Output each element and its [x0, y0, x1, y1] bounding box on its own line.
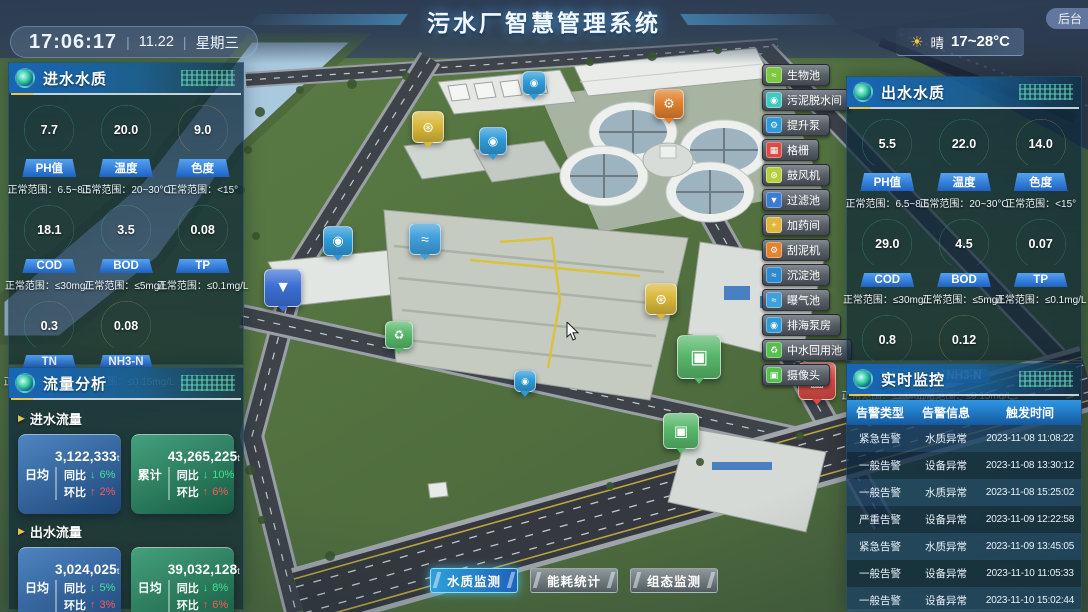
blower-marker-icon[interactable]: ⊛	[412, 111, 444, 143]
alarm-info: 设备异常	[913, 566, 979, 581]
legend-label: 刮泥机	[787, 242, 820, 258]
blower-icon: ⊛	[766, 167, 782, 183]
marker-pointer	[394, 348, 404, 354]
alarm-table: 告警类型告警信息触发时间 紧急告警水质异常2023-11-08 11:08:22…	[847, 400, 1081, 612]
marker-pointer	[529, 94, 539, 100]
arrow-down-icon: ↓	[203, 469, 209, 481]
alarm-info: 水质异常	[913, 431, 979, 446]
gauge-value: 18.1	[24, 205, 74, 255]
marker-pointer	[488, 154, 498, 160]
legend-item-sludge-dewatering[interactable]: ◉污泥脱水间	[762, 89, 852, 111]
mom-row: 环比↑6%	[177, 597, 228, 612]
gauge-value: 22.0	[939, 119, 989, 169]
gauge-range: 正常范围：≤30mg/L	[843, 291, 932, 306]
alarm-time: 2023-11-08 13:30:12	[979, 460, 1081, 471]
gauge-label: COD	[22, 259, 76, 273]
alarm-info: 设备异常	[913, 593, 979, 608]
alarm-column-header: 告警信息	[913, 404, 979, 421]
gauge-dial: 4.5	[939, 219, 989, 269]
flow-card-unit: t	[237, 566, 240, 576]
dot-matrix-decoration	[1019, 371, 1073, 387]
panel-header: 流量分析	[9, 368, 243, 398]
yoy-label: 同比	[64, 467, 86, 483]
alarm-time: 2023-11-08 15:25:02	[979, 487, 1081, 498]
gauge-range: 正常范围：<15°	[167, 181, 238, 196]
legend-item-sea-pump-house[interactable]: ◉排海泵房	[762, 314, 841, 336]
yoy-label: 同比	[177, 467, 199, 483]
clock-time: 17:06:17	[29, 31, 117, 54]
weather-temperature: 17~28°C	[951, 33, 1010, 50]
gauge-value: 29.0	[862, 219, 912, 269]
gauge-range: 正常范围：≤5mg/L	[922, 291, 1005, 306]
separator: |	[183, 34, 187, 50]
gauge-dial: 29.0	[862, 219, 912, 269]
legend-item-aeration-pool[interactable]: ≈曝气池	[762, 289, 830, 311]
gauge-dial: 0.07	[1016, 219, 1066, 269]
panel-title: 实时监控	[881, 369, 945, 390]
gauge-dial: 5.5	[862, 119, 912, 169]
alarm-type: 紧急告警	[847, 539, 913, 554]
legend-item-lift-pump[interactable]: ⚙提升泵	[762, 114, 830, 136]
panel-orb-icon	[853, 369, 873, 389]
panel-header-underline	[849, 394, 1079, 396]
yoy-value: 8%	[212, 582, 228, 594]
gauge-value: 0.08	[101, 301, 151, 351]
flow-card[interactable]: 日均3,024,025t同比↓5%环比↑3%	[18, 547, 121, 612]
gauge-range: 正常范围：6.5~8.5	[846, 195, 930, 210]
gauge-dial: 9.0	[178, 105, 228, 155]
alarm-type: 一般告警	[847, 485, 913, 500]
yoy-value: 6%	[100, 469, 116, 481]
gauge-dial: 0.08	[101, 301, 151, 351]
arrow-up-icon: ↑	[203, 599, 209, 611]
grille-icon: ▦	[766, 142, 782, 158]
gauge-dial: 3.5	[101, 205, 151, 255]
flow-group-label: ▶出水流量	[18, 522, 234, 541]
alarm-row[interactable]: 严重告警设备异常2023-11-09 12:22:58	[847, 506, 1081, 533]
gauge-bod: 4.5BOD正常范围：≤5mg/L	[927, 219, 1001, 306]
dot-matrix-decoration	[181, 375, 235, 391]
mom-value: 6%	[212, 599, 228, 611]
flow-card-body: 43,265,225t同比↓10%环比↑6%	[168, 449, 240, 500]
gauge-tp: 0.07TP正常范围：≤0.1mg/L	[1004, 219, 1078, 306]
gauge-range: 正常范围：≤30mg/L	[5, 277, 94, 292]
alarm-type: 严重告警	[847, 512, 913, 527]
mom-row: 环比↑2%	[64, 484, 115, 500]
panel-header: 出水水质	[847, 77, 1081, 107]
gauge-label: BOD	[99, 259, 153, 273]
gauge-chroma: 14.0色度正常范围：<15°	[1004, 119, 1078, 210]
gauge-label: 温度	[99, 159, 153, 177]
gauge-dial: 0.08	[178, 205, 228, 255]
alarm-info: 设备异常	[913, 458, 979, 473]
arrow-up-icon: ↑	[203, 486, 209, 498]
tab-energy-stats[interactable]: 能耗统计	[530, 568, 618, 593]
legend-label: 污泥脱水间	[787, 92, 842, 108]
pump-marker-icon[interactable]: ◉	[514, 370, 536, 392]
flow-cards: 日均3,024,025t同比↓5%环比↑3%日均39,032,128t同比↓8%…	[18, 547, 234, 612]
dosing-room-icon: +	[766, 217, 782, 233]
blower-marker-icon[interactable]: ⊛	[645, 283, 677, 315]
pump-marker-icon[interactable]: ◉	[323, 226, 353, 256]
mom-label: 环比	[64, 484, 86, 500]
gauge-value: 3.5	[101, 205, 151, 255]
flow-card-unit: t	[237, 453, 240, 463]
tab-water-quality-monitor[interactable]: 水质监测	[430, 568, 518, 593]
gauge-bod: 3.5BOD正常范围：≤5mg/L	[89, 205, 163, 292]
sedimentation-pool-icon: ≈	[766, 267, 782, 283]
alarm-time: 2023-11-09 12:22:58	[979, 514, 1081, 525]
flow-group-label: ▶进水流量	[18, 409, 234, 428]
clock-date: 11.22	[139, 34, 174, 50]
alarm-row[interactable]: 一般告警设备异常2023-11-10 15:02:44	[847, 587, 1081, 612]
arrow-down-icon: ↓	[90, 582, 96, 594]
gauge-label: 色度	[176, 159, 230, 177]
alarm-row[interactable]: 紧急告警水质异常2023-11-09 13:45:05	[847, 533, 1081, 560]
alarm-type: 一般告警	[847, 593, 913, 608]
gauge-value: 4.5	[939, 219, 989, 269]
gauge-range: 正常范围：≤0.1mg/L	[157, 277, 249, 292]
dashboard-root: ⊛◉◉⚙≈◉▼♻⊛▣▦▣◉ ≈生物池◉污泥脱水间⚙提升泵▦格栅⊛鼓风机▼过滤池+…	[0, 0, 1088, 612]
flow-card-body: 3,122,333t同比↓6%环比↑2%	[55, 449, 120, 500]
gauge-value: 20.0	[101, 105, 151, 155]
alarm-type: 一般告警	[847, 458, 913, 473]
flow-card-tag: 累计	[137, 466, 163, 483]
legend-label: 摄像头	[787, 367, 820, 383]
water-reuse-marker-icon[interactable]: ♻	[385, 321, 413, 349]
yoy-row: 同比↓6%	[64, 467, 115, 483]
marker-pointer	[278, 306, 288, 312]
gauge-range: 正常范围：6.5~8.5	[8, 181, 92, 196]
gauge-label: PH值	[22, 159, 76, 177]
gauge-label: 色度	[1014, 173, 1068, 191]
flow-card-tag: 日均	[24, 579, 50, 596]
gauge-dial: 7.7	[24, 105, 74, 155]
flow-card-value: 3,024,025t	[55, 562, 120, 577]
alarm-info: 设备异常	[913, 512, 979, 527]
alarm-row[interactable]: 一般告警水质异常2023-11-08 15:25:02	[847, 479, 1081, 506]
flow-card-value: 3,122,333t	[55, 449, 120, 464]
camera-marker-icon[interactable]: ▣	[663, 413, 699, 449]
gauge-value: 9.0	[178, 105, 228, 155]
gauge-dial: 0.3	[24, 301, 74, 351]
datetime-widget: 17:06:17 | 11.22 | 星期三	[10, 26, 258, 58]
gauge-value: 5.5	[862, 119, 912, 169]
legend-label: 沉淀池	[787, 267, 820, 283]
arrow-up-icon: ↑	[90, 599, 96, 611]
gauge-label: 温度	[937, 173, 991, 191]
flow-card-body: 39,032,128t同比↓8%环比↑6%	[168, 562, 240, 612]
gauge-range: 正常范围：≤5mg/L	[84, 277, 167, 292]
alarm-row[interactable]: 紧急告警水质异常2023-11-08 11:08:22	[847, 425, 1081, 452]
alarm-row[interactable]: 一般告警设备异常2023-11-08 13:30:12	[847, 452, 1081, 479]
sludge-dewatering-icon: ◉	[766, 92, 782, 108]
yoy-row: 同比↓5%	[64, 580, 115, 596]
dot-matrix-decoration	[181, 70, 235, 86]
gauge-label: TP	[1014, 273, 1068, 287]
legend-item-grille[interactable]: ▦格栅	[762, 139, 819, 161]
gauge-value: 0.3	[24, 301, 74, 351]
marker-pointer	[520, 391, 530, 397]
legend-label: 生物池	[787, 67, 820, 83]
aeration-pool-icon: ≈	[766, 292, 782, 308]
gauge-range: 正常范围：20~30°C	[81, 181, 170, 196]
filter-pool-icon: ▼	[766, 192, 782, 208]
sea-pump-house-icon: ◉	[766, 317, 782, 333]
top-bar: 污水厂智慧管理系统 17:06:17 | 11.22 | 星期三 ☀ 晴 17~…	[0, 0, 1088, 64]
flow-card-stats: 同比↓10%环比↑6%	[168, 467, 235, 500]
gauge-label: PH值	[860, 173, 914, 191]
water-reuse-pool-icon: ♻	[766, 342, 782, 358]
sun-icon: ☀	[910, 33, 923, 51]
alarm-time: 2023-11-10 15:02:44	[979, 595, 1081, 606]
flow-card-tag: 日均	[137, 579, 163, 596]
gauge-cod: 29.0COD正常范围：≤30mg/L	[850, 219, 924, 306]
legend-item-dosing-room[interactable]: +加药间	[762, 214, 830, 236]
flow-card-unit: t	[117, 453, 120, 463]
legend-item-mud-scraper[interactable]: ⚙刮泥机	[762, 239, 830, 261]
flow-card-stats: 同比↓8%环比↑6%	[168, 580, 228, 612]
marker-pointer	[812, 399, 822, 405]
alarm-row[interactable]: 一般告警设备异常2023-11-10 11:05:33	[847, 560, 1081, 587]
aeration-pool-marker-icon[interactable]: ≈	[409, 223, 441, 255]
flow-group-title: 出水流量	[30, 522, 82, 541]
gauge-label: BOD	[937, 273, 991, 287]
mom-value: 2%	[100, 486, 116, 498]
gauge-dial: 18.1	[24, 205, 74, 255]
alarm-column-header: 触发时间	[979, 404, 1081, 421]
alarm-table-body: 紧急告警水质异常2023-11-08 11:08:22一般告警设备异常2023-…	[847, 425, 1081, 612]
legend-item-blower[interactable]: ⊛鼓风机	[762, 164, 830, 186]
legend-item-bio-pool[interactable]: ≈生物池	[762, 64, 830, 86]
caret-icon: ▶	[18, 413, 25, 424]
panel-title: 流量分析	[43, 373, 107, 394]
inlet-quality-panel: 进水水质 7.7PH值正常范围：6.5~8.520.0温度正常范围：20~30°…	[8, 62, 244, 365]
weather-condition: 晴	[931, 32, 945, 52]
gauge-cod: 18.1COD正常范围：≤30mg/L	[12, 205, 86, 292]
backend-button[interactable]: 后台	[1046, 8, 1088, 29]
camera-marker-icon[interactable]: ▣	[677, 335, 721, 379]
panel-header: 实时监控	[847, 364, 1081, 394]
legend-label: 提升泵	[787, 117, 820, 133]
flow-card[interactable]: 日均39,032,128t同比↓8%环比↑6%	[131, 547, 234, 612]
flow-card-tag: 日均	[24, 466, 50, 483]
alarm-info: 水质异常	[913, 485, 979, 500]
arrow-up-icon: ↑	[90, 486, 96, 498]
gauge-chroma: 9.0色度正常范围：<15°	[166, 105, 240, 196]
gauge-temperature: 20.0温度正常范围：20~30°C	[89, 105, 163, 196]
outlet-quality-panel: 出水水质 5.5PH值正常范围：6.5~8.522.0温度正常范围：20~30°…	[846, 76, 1082, 361]
mom-value: 3%	[100, 599, 116, 611]
legend-item-filter-pool[interactable]: ▼过滤池	[762, 189, 830, 211]
gauge-label: COD	[860, 273, 914, 287]
mom-label: 环比	[177, 484, 199, 500]
marker-pointer	[694, 378, 704, 384]
alarm-table-header: 告警类型告警信息触发时间	[847, 400, 1081, 425]
mom-row: 环比↑6%	[177, 484, 235, 500]
alarm-info: 水质异常	[913, 539, 979, 554]
flow-card-value: 43,265,225t	[168, 449, 240, 464]
panel-orb-icon	[15, 373, 35, 393]
gauge-label: TP	[176, 259, 230, 273]
flow-card-stats: 同比↓5%环比↑3%	[55, 580, 115, 612]
legend-label: 曝气池	[787, 292, 820, 308]
equipment-legend: ≈生物池◉污泥脱水间⚙提升泵▦格栅⊛鼓风机▼过滤池+加药间⚙刮泥机≈沉淀池≈曝气…	[762, 64, 852, 386]
alarm-time: 2023-11-09 13:45:05	[979, 541, 1081, 552]
yoy-label: 同比	[64, 580, 86, 596]
flow-card-stats: 同比↓6%环比↑2%	[55, 467, 115, 500]
gauge-dial: 14.0	[1016, 119, 1066, 169]
legend-label: 加药间	[787, 217, 820, 233]
gauge-value: 0.07	[1016, 219, 1066, 269]
mom-label: 环比	[177, 597, 199, 612]
arrow-down-icon: ↓	[203, 582, 209, 594]
marker-pointer	[664, 118, 674, 124]
panel-orb-icon	[853, 82, 873, 102]
mom-label: 环比	[64, 597, 86, 612]
flow-group-title: 进水流量	[30, 409, 82, 428]
flow-cards: 日均3,122,333t同比↓6%环比↑2%累计43,265,225t同比↓10…	[18, 434, 234, 514]
panel-title: 出水水质	[881, 82, 945, 103]
yoy-row: 同比↓10%	[177, 467, 235, 483]
flow-groups: ▶进水流量日均3,122,333t同比↓6%环比↑2%累计43,265,225t…	[9, 400, 243, 612]
filter-pool-marker-icon[interactable]: ▼	[264, 269, 302, 307]
yoy-value: 5%	[100, 582, 116, 594]
legend-label: 鼓风机	[787, 167, 820, 183]
gauge-temperature: 22.0温度正常范围：20~30°C	[927, 119, 1001, 210]
bottom-tab-bar: 水质监测能耗统计组态监测	[430, 568, 718, 593]
gauge-value: 0.8	[862, 315, 912, 365]
pump-marker-icon[interactable]: ◉	[522, 71, 546, 95]
weather-widget: ☀ 晴 17~28°C	[896, 28, 1024, 56]
gauge-value: 0.12	[939, 315, 989, 365]
gauge-ph: 7.7PH值正常范围：6.5~8.5	[12, 105, 86, 196]
mom-value: 6%	[212, 486, 228, 498]
camera-icon: ▣	[766, 367, 782, 383]
gauge-range: 正常范围：≤0.1mg/L	[995, 291, 1087, 306]
alarm-time: 2023-11-08 11:08:22	[979, 433, 1081, 444]
caret-icon: ▶	[18, 526, 25, 537]
flow-card-unit: t	[117, 566, 120, 576]
legend-label: 中水回用池	[787, 342, 842, 358]
flow-analysis-panel: 流量分析 ▶进水流量日均3,122,333t同比↓6%环比↑2%累计43,265…	[8, 367, 244, 610]
alarm-time: 2023-11-10 11:05:33	[979, 568, 1081, 579]
alarm-type: 一般告警	[847, 566, 913, 581]
alarm-type: 紧急告警	[847, 431, 913, 446]
marker-pointer	[420, 254, 430, 260]
alarm-column-header: 告警类型	[847, 404, 913, 421]
tab-scada-monitor[interactable]: 组态监测	[630, 568, 718, 593]
panel-header: 进水水质	[9, 63, 243, 93]
marker-pointer	[676, 448, 686, 454]
flow-card-body: 3,024,025t同比↓5%环比↑3%	[55, 562, 120, 612]
lift-pump-icon: ⚙	[766, 117, 782, 133]
gauge-tp: 0.08TP正常范围：≤0.1mg/L	[166, 205, 240, 292]
lift-pump-marker-icon[interactable]: ◉	[479, 127, 507, 155]
inlet-gauges: 7.7PH值正常范围：6.5~8.520.0温度正常范围：20~30°C9.0色…	[9, 95, 243, 388]
gauge-range: 正常范围：20~30°C	[919, 195, 1008, 210]
gauge-dial: 22.0	[939, 119, 989, 169]
bio-pool-icon: ≈	[766, 67, 782, 83]
legend-label: 排海泵房	[787, 317, 831, 333]
dot-matrix-decoration	[1019, 84, 1073, 100]
gauge-value: 7.7	[24, 105, 74, 155]
monitoring-panel: 实时监控 告警类型告警信息触发时间 紧急告警水质异常2023-11-08 11:…	[846, 363, 1082, 610]
flow-card-value: 39,032,128t	[168, 562, 240, 577]
yoy-label: 同比	[177, 580, 199, 596]
yoy-value: 10%	[212, 469, 234, 481]
flow-card[interactable]: 日均3,122,333t同比↓6%环比↑2%	[18, 434, 121, 514]
yoy-row: 同比↓8%	[177, 580, 228, 596]
flow-card[interactable]: 累计43,265,225t同比↓10%环比↑6%	[131, 434, 234, 514]
arrow-down-icon: ↓	[90, 469, 96, 481]
legend-item-water-reuse-pool[interactable]: ♻中水回用池	[762, 339, 852, 361]
gauge-value: 14.0	[1016, 119, 1066, 169]
gauge-dial: 0.12	[939, 315, 989, 365]
mud-scraper-marker-icon[interactable]: ⚙	[654, 89, 684, 119]
clock-weekday: 星期三	[196, 32, 240, 53]
gauge-range: 正常范围：<15°	[1005, 195, 1076, 210]
marker-pointer	[423, 142, 433, 148]
marker-pointer	[656, 314, 666, 320]
mom-row: 环比↑3%	[64, 597, 115, 612]
mud-scraper-icon: ⚙	[766, 242, 782, 258]
outlet-gauges: 5.5PH值正常范围：6.5~8.522.0温度正常范围：20~30°C14.0…	[847, 109, 1081, 402]
gauge-value: 0.08	[178, 205, 228, 255]
marker-pointer	[333, 255, 343, 261]
panel-title: 进水水质	[43, 68, 107, 89]
legend-item-sedimentation-pool[interactable]: ≈沉淀池	[762, 264, 830, 286]
legend-label: 过滤池	[787, 192, 820, 208]
panel-orb-icon	[15, 68, 35, 88]
legend-item-camera[interactable]: ▣摄像头	[762, 364, 830, 386]
gauge-ph: 5.5PH值正常范围：6.5~8.5	[850, 119, 924, 210]
gauge-dial: 20.0	[101, 105, 151, 155]
separator: |	[126, 34, 130, 50]
legend-label: 格栅	[787, 142, 809, 158]
gauge-dial: 0.8	[862, 315, 912, 365]
